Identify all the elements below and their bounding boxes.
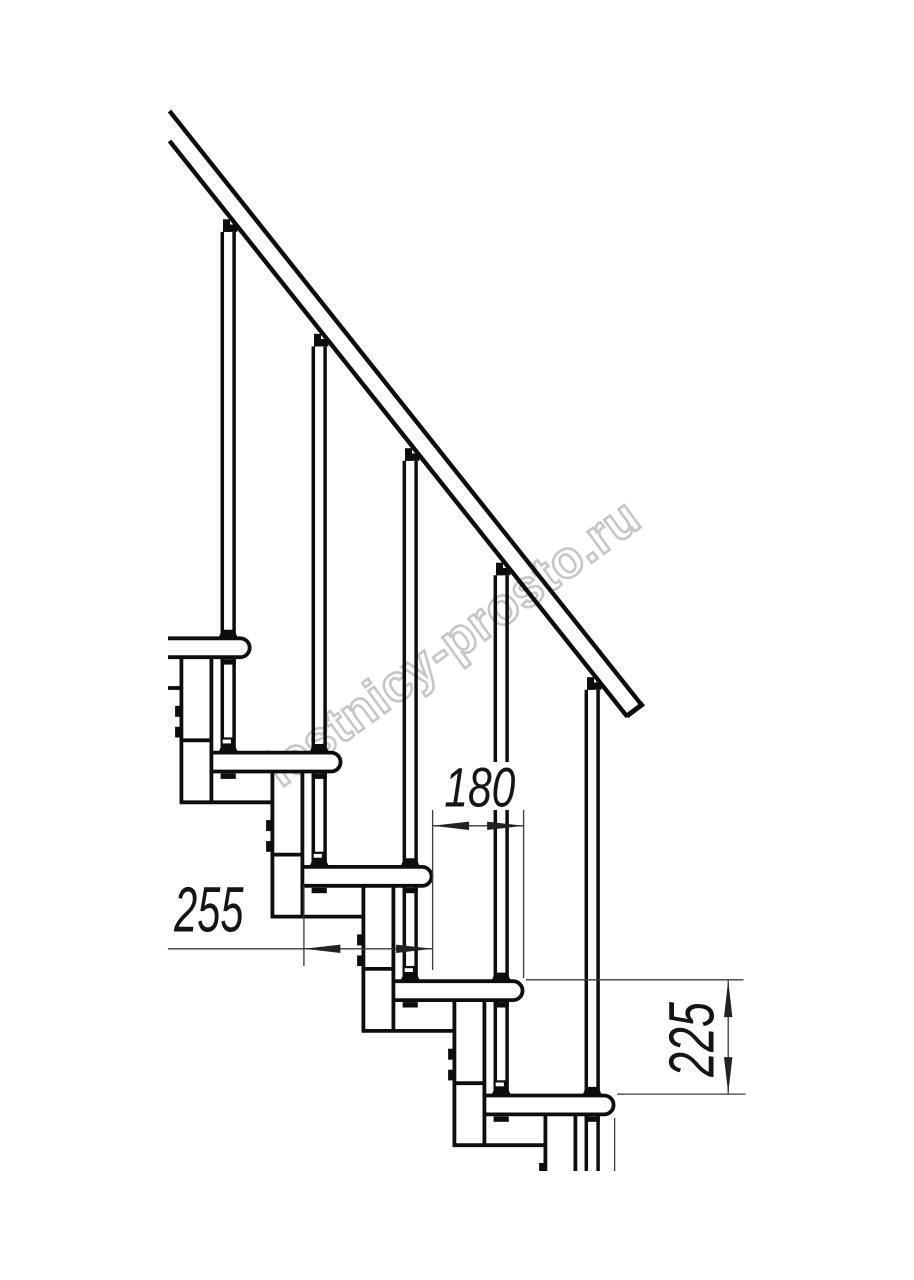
svg-text:255: 255 xyxy=(173,875,244,946)
svg-text:225: 225 xyxy=(656,1002,728,1078)
svg-text:180: 180 xyxy=(444,756,515,819)
